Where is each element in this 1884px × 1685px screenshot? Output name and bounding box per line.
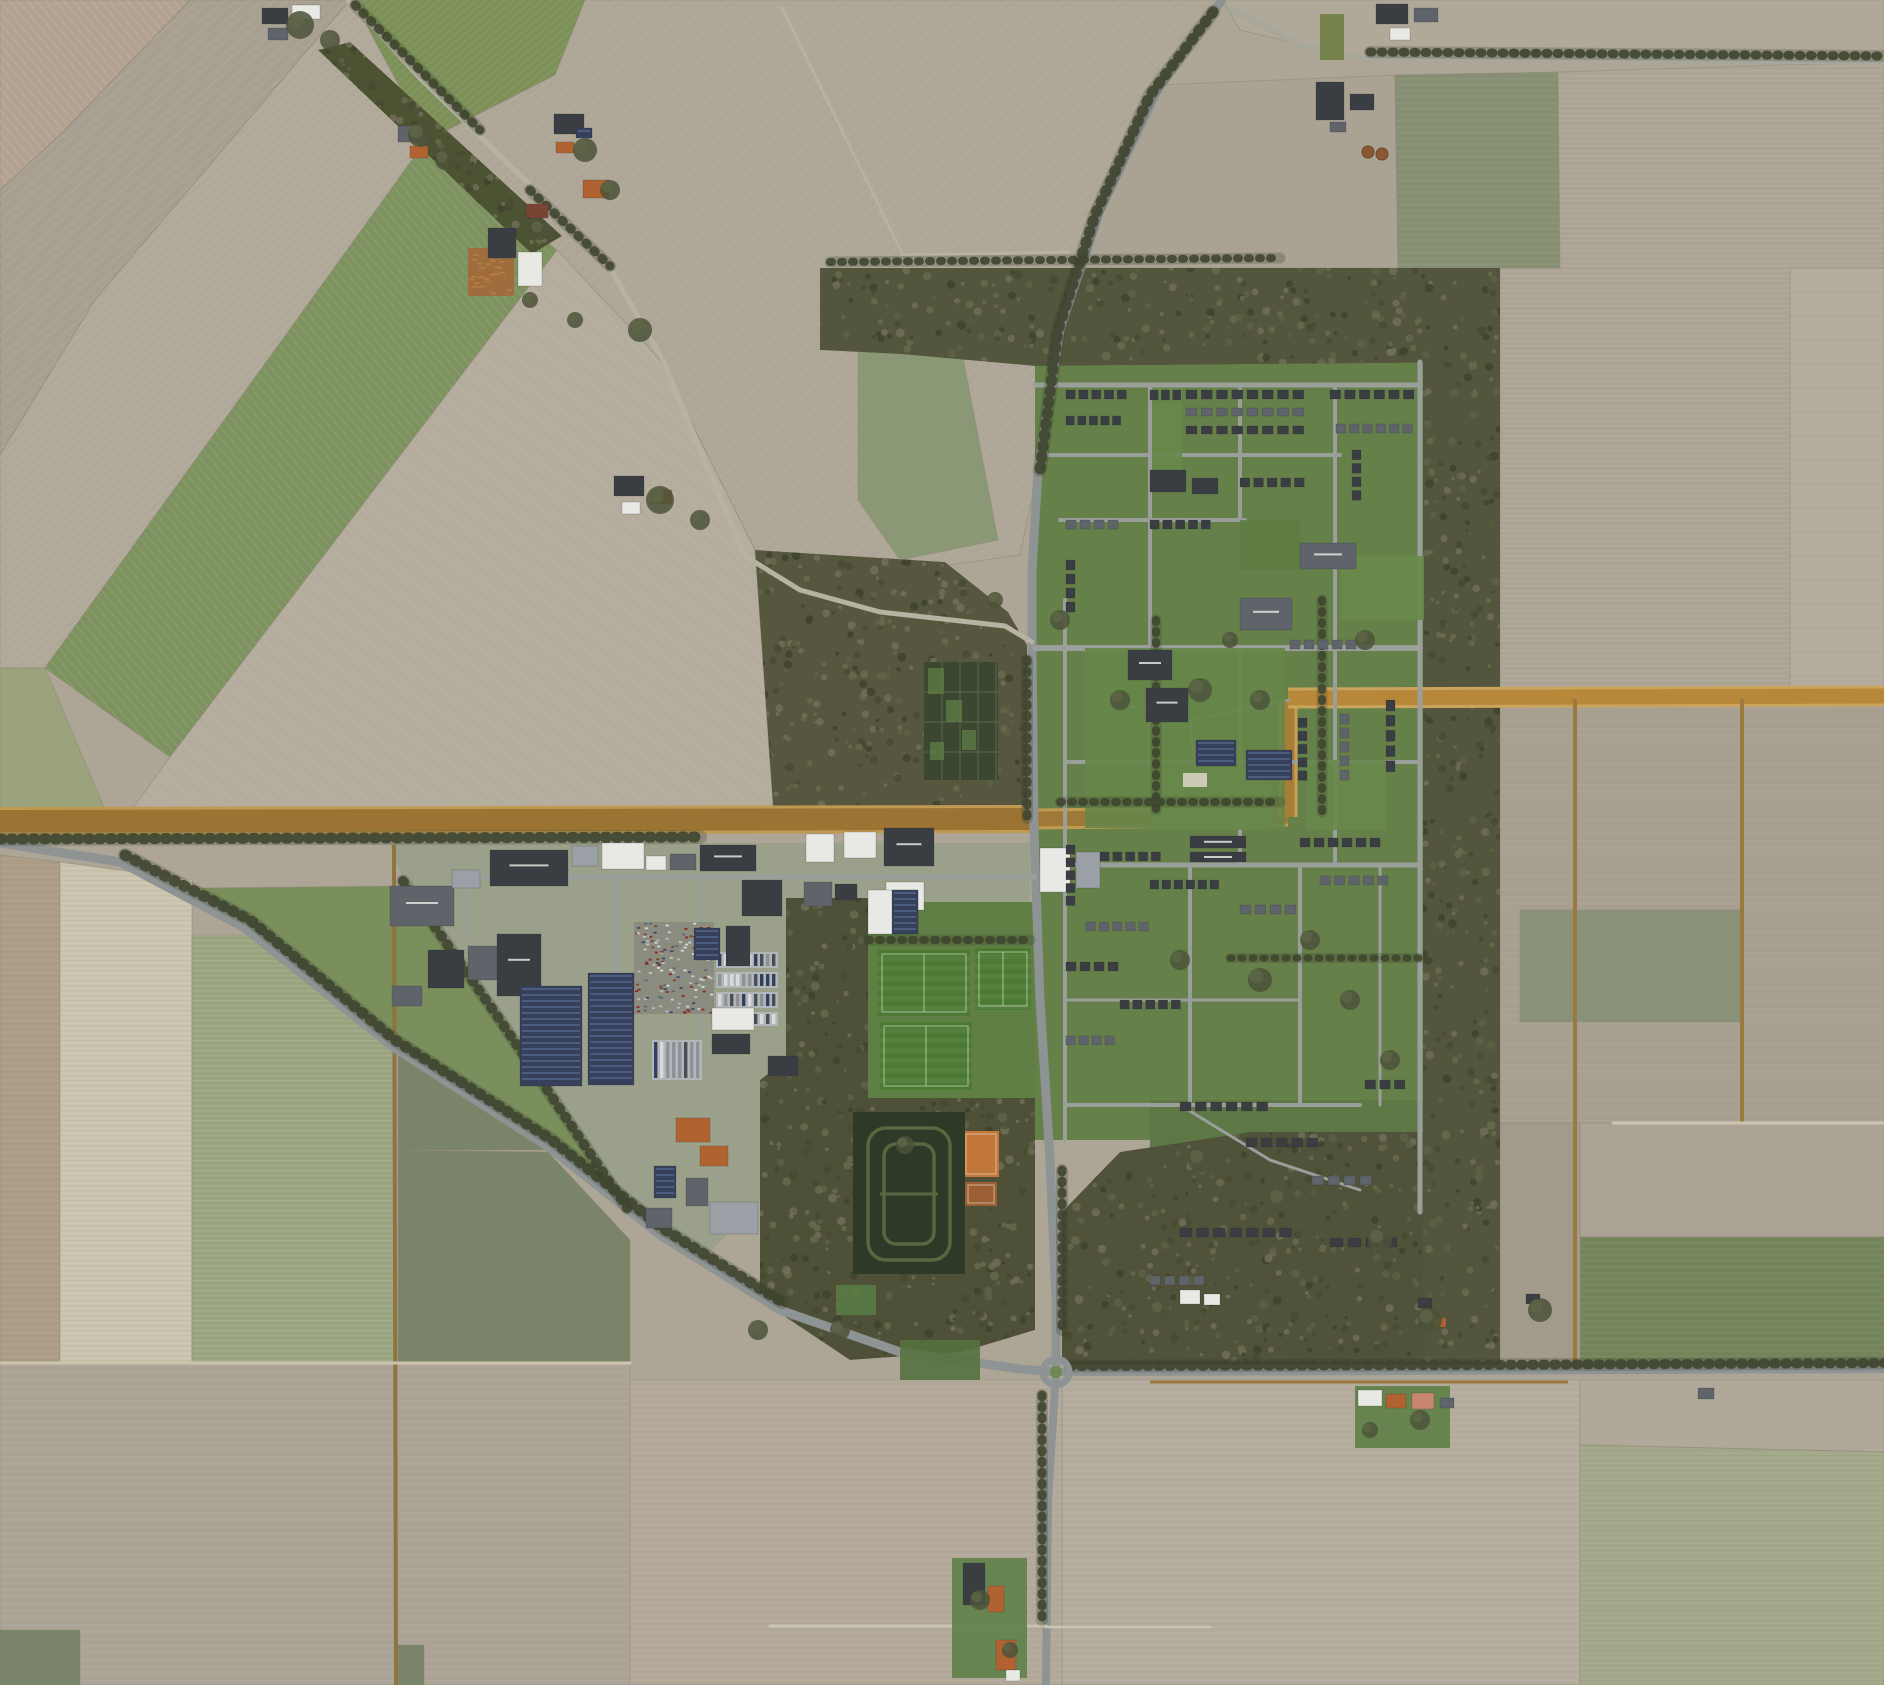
scene-root xyxy=(0,0,1884,1685)
satellite-image xyxy=(0,0,1884,1685)
aerial-photo-canvas xyxy=(0,0,1884,1685)
photo-grain xyxy=(0,0,1884,1685)
